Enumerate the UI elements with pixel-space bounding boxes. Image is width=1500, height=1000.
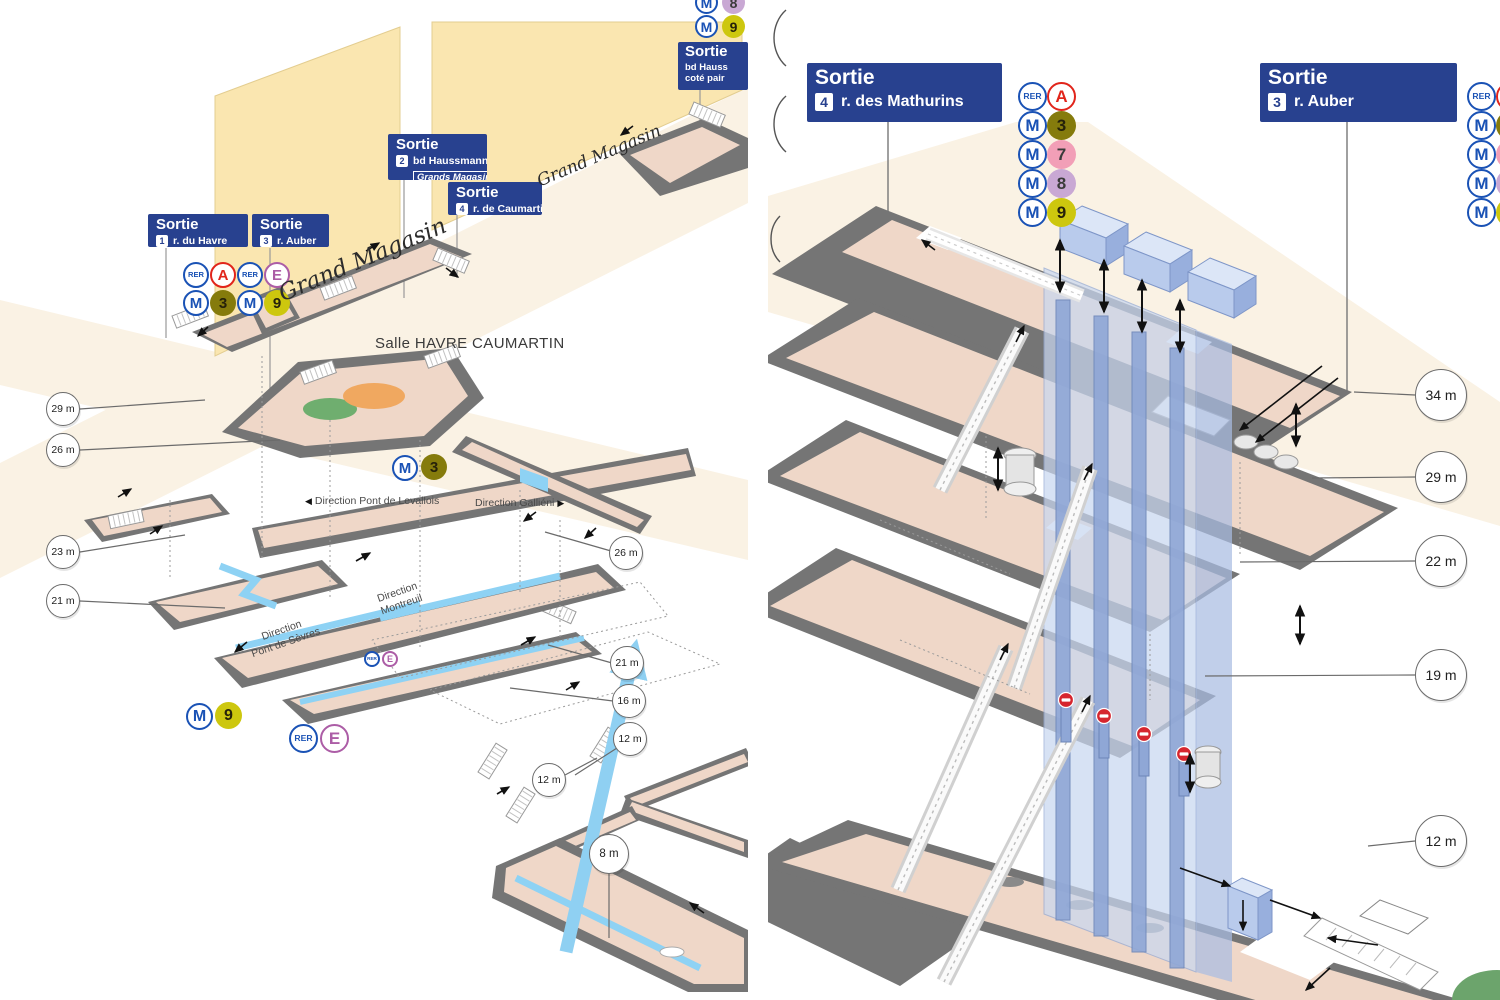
rer-a-badge-clipped: A bbox=[1496, 82, 1500, 111]
exit-sign-bd-haussmann-pair: Sortie bd Hauss coté pair bbox=[678, 42, 748, 90]
havre-caumartin-cutaway-panel: M 8 M 9 Sortie bd Hauss coté pair Sortie… bbox=[0, 0, 748, 1000]
sign-street: r. des Mathurins bbox=[841, 93, 964, 111]
exit-sign-4-r-de-caumartin: Sortie 4r. de Caumartin bbox=[448, 182, 542, 215]
metro-logo-badge: M bbox=[183, 290, 209, 316]
left-arrow-icon: ◀ bbox=[305, 496, 312, 507]
sign-street2: coté pair bbox=[685, 73, 748, 84]
exit-sign-2-bd-haussmann: Sortie 2bd Haussmann Grands Magasins bbox=[388, 134, 487, 180]
auber-cutaway-panel: Sortie 4r. des Mathurins Sortie 3r. Aube… bbox=[768, 0, 1500, 1000]
sign-street: bd Haussmann bbox=[413, 155, 487, 167]
metro-logo-badge: M bbox=[1018, 169, 1047, 198]
metro-logo-badge: M bbox=[1467, 111, 1496, 140]
depth-marker-21m: 21 m bbox=[46, 584, 80, 618]
line-9-badge: 9 bbox=[215, 702, 242, 729]
right-arrow-icon: ▶ bbox=[557, 498, 564, 509]
line-7-badge-clipped: 7 bbox=[1496, 140, 1500, 169]
metro-logo-badge: M bbox=[1018, 140, 1047, 169]
sign-street: bd Hauss bbox=[685, 62, 748, 73]
depth-marker-16m: 16 m bbox=[612, 684, 646, 718]
direction-gallieni-label: Direction Galliéni ▶ bbox=[475, 497, 564, 509]
depth-marker-12m-b: 12 m bbox=[532, 763, 566, 797]
depth-marker-34m: 34 m bbox=[1415, 369, 1467, 421]
depth-marker-26m-right: 26 m bbox=[609, 536, 643, 570]
metro-logo-badge: M bbox=[1018, 198, 1047, 227]
rer-a-badge: A bbox=[210, 262, 236, 288]
salle-havre-caumartin-label: Salle HAVRE CAUMARTIN bbox=[375, 335, 565, 352]
sign-title: Sortie bbox=[685, 44, 748, 61]
rer-a-badge: A bbox=[1047, 82, 1076, 111]
exit-sign-4-r-des-mathurins: Sortie 4r. des Mathurins bbox=[807, 63, 1002, 122]
metro-logo-badge: M bbox=[186, 703, 213, 730]
rer-logo-badge: RER bbox=[1018, 82, 1047, 111]
line-8-badge: 8 bbox=[1047, 169, 1076, 198]
metro-logo-badge: M bbox=[1467, 140, 1496, 169]
line-3-badge: 3 bbox=[421, 454, 447, 480]
exit-number: 2 bbox=[396, 155, 408, 167]
intermediate-levels bbox=[84, 494, 348, 630]
line-3-badge-clipped: 3 bbox=[1496, 111, 1500, 140]
line-3-badge: 3 bbox=[1047, 111, 1076, 140]
metro-logo-badge: M bbox=[1467, 169, 1496, 198]
depth-marker-19m: 19 m bbox=[1415, 649, 1467, 701]
metro-logo-badge: M bbox=[237, 290, 263, 316]
sign-street: r. Auber bbox=[277, 235, 316, 247]
exit-sign-3-r-auber: Sortie 3r. Auber bbox=[1260, 63, 1457, 122]
line-8-badge-clipped: 8 bbox=[1496, 169, 1500, 198]
exit-number: 4 bbox=[456, 203, 468, 215]
exit-sign-3-r-auber: Sortie 3r. Auber bbox=[252, 214, 329, 247]
metro-logo-badge: M bbox=[392, 455, 418, 481]
rer-logo-badge: RER bbox=[1467, 82, 1496, 111]
direction-levallois-label: ◀ Direction Pont de Levallois bbox=[305, 495, 439, 507]
sign-street: r. du Havre bbox=[173, 235, 227, 247]
depth-marker-22m: 22 m bbox=[1415, 535, 1467, 587]
depth-marker-29m: 29 m bbox=[46, 392, 80, 426]
depth-marker-29m: 29 m bbox=[1415, 451, 1467, 503]
sign-subtitle: Grands Magasins bbox=[413, 171, 487, 181]
station-cutaway-diagram: { "logos": {"m": "M", "rer": "RER"}, "li… bbox=[0, 0, 1500, 1000]
rer-logo-badge: RER bbox=[183, 262, 209, 288]
rer-e-badge: E bbox=[320, 724, 349, 753]
rer-e-badge: E bbox=[382, 651, 398, 667]
depth-marker-21m-right: 21 m bbox=[610, 646, 644, 680]
metro-logo-badge: M bbox=[695, 15, 718, 38]
line-3-badge: 3 bbox=[210, 290, 236, 316]
depth-marker-8m: 8 m bbox=[589, 834, 629, 874]
metro-logo-badge: M bbox=[1467, 198, 1496, 227]
rer-logo-badge: RER bbox=[289, 724, 318, 753]
green-zone bbox=[1452, 970, 1500, 1000]
exit-number: 3 bbox=[260, 235, 272, 247]
depth-marker-26m: 26 m bbox=[46, 433, 80, 467]
small-elevator bbox=[1228, 878, 1272, 940]
depth-marker-23m: 23 m bbox=[46, 535, 80, 569]
metro-logo-badge: M bbox=[1018, 111, 1047, 140]
exit-sign-1-r-du-havre: Sortie 1r. du Havre bbox=[148, 214, 248, 247]
clipped-badge-column: RER A M 3 M 7 M 8 M 9 bbox=[1464, 0, 1500, 240]
line-9-badge: 9 bbox=[722, 15, 745, 38]
exit-number: 3 bbox=[1268, 93, 1286, 111]
line-9-badge-clipped: 9 bbox=[1496, 198, 1500, 227]
line-9-badge: 9 bbox=[1047, 198, 1076, 227]
line-7-badge: 7 bbox=[1047, 140, 1076, 169]
sign-street: r. de Caumartin bbox=[473, 203, 542, 215]
exit-number: 4 bbox=[815, 93, 833, 111]
right-isometric-artwork bbox=[768, 0, 1500, 1000]
exit-number: 1 bbox=[156, 235, 168, 247]
rer-logo-badge: RER bbox=[237, 262, 263, 288]
depth-marker-12m: 12 m bbox=[1415, 815, 1467, 867]
depth-marker-12m: 12 m bbox=[613, 722, 647, 756]
rer-logo-badge: RER bbox=[364, 651, 380, 667]
sign-street: r. Auber bbox=[1294, 93, 1354, 111]
